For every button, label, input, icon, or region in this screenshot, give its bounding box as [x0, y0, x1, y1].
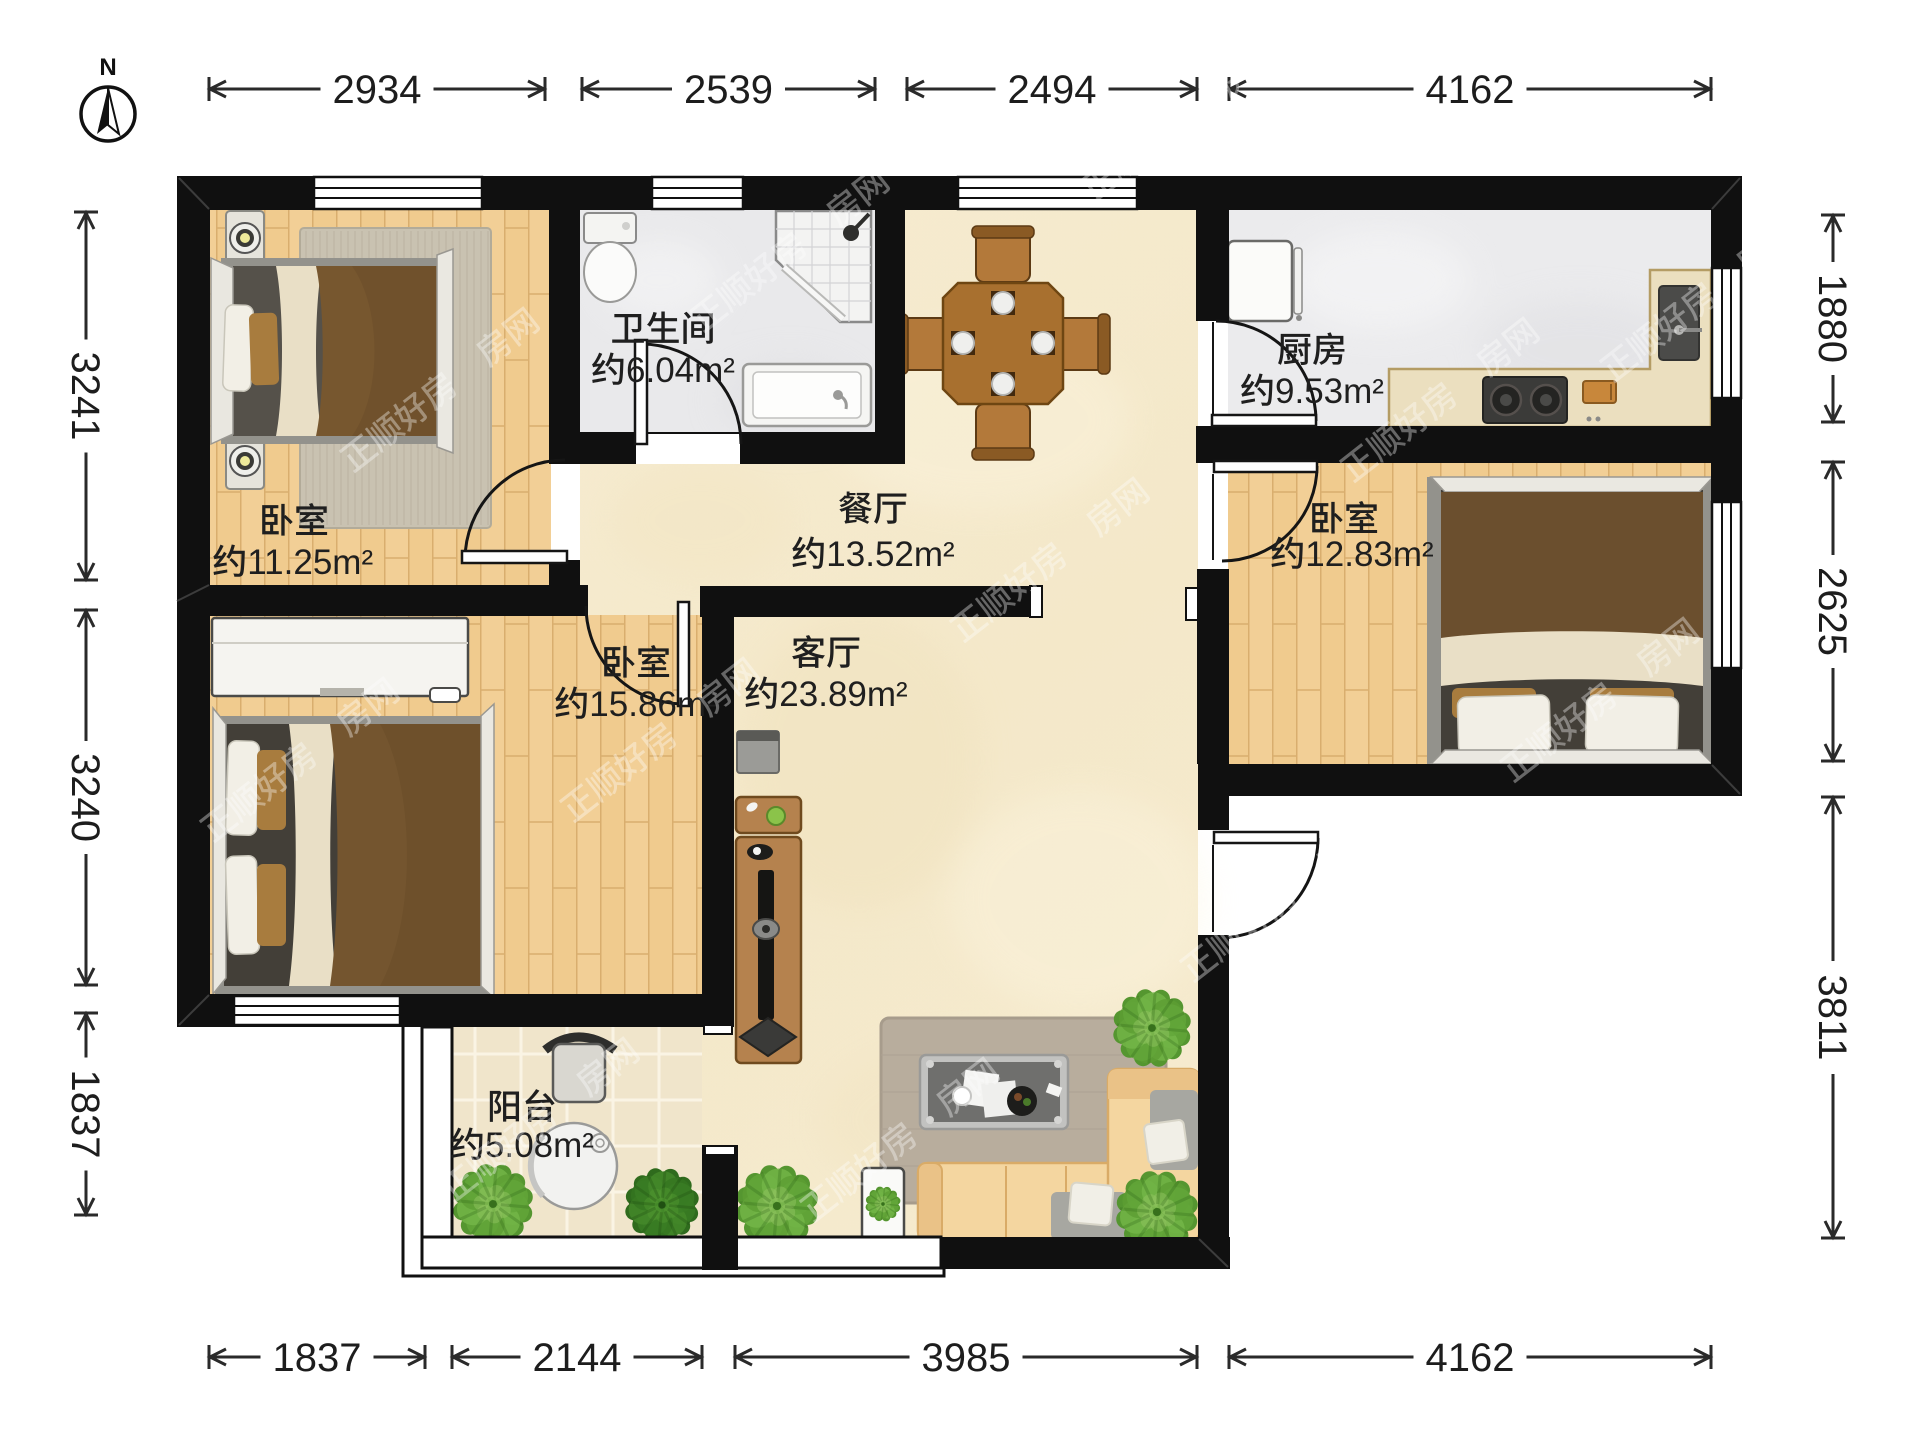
svg-text:15.86m²: 15.86m² [589, 685, 717, 724]
svg-text:13.52m²: 13.52m² [826, 535, 954, 574]
svg-text:3811: 3811 [1810, 974, 1854, 1060]
svg-text:3985: 3985 [922, 1336, 1011, 1380]
svg-text:3240: 3240 [63, 753, 107, 842]
svg-text:2625: 2625 [1810, 567, 1854, 656]
svg-text:4162: 4162 [1426, 1336, 1515, 1380]
svg-text:6.04m²: 6.04m² [626, 351, 735, 390]
svg-text:2934: 2934 [333, 68, 422, 112]
svg-text:3241: 3241 [63, 352, 107, 441]
svg-text:9.53m²: 9.53m² [1275, 372, 1384, 411]
svg-text:23.89m²: 23.89m² [779, 675, 907, 714]
svg-text:12.83m²: 12.83m² [1305, 535, 1433, 574]
svg-text:2539: 2539 [684, 68, 773, 112]
svg-text:1880: 1880 [1810, 274, 1854, 363]
svg-text:1837: 1837 [273, 1336, 362, 1380]
svg-text:2144: 2144 [533, 1336, 622, 1380]
svg-text:4162: 4162 [1426, 68, 1515, 112]
svg-text:2494: 2494 [1008, 68, 1097, 112]
svg-text:N: N [99, 54, 116, 81]
svg-text:11.25m²: 11.25m² [247, 543, 373, 582]
svg-text:1837: 1837 [63, 1070, 107, 1159]
